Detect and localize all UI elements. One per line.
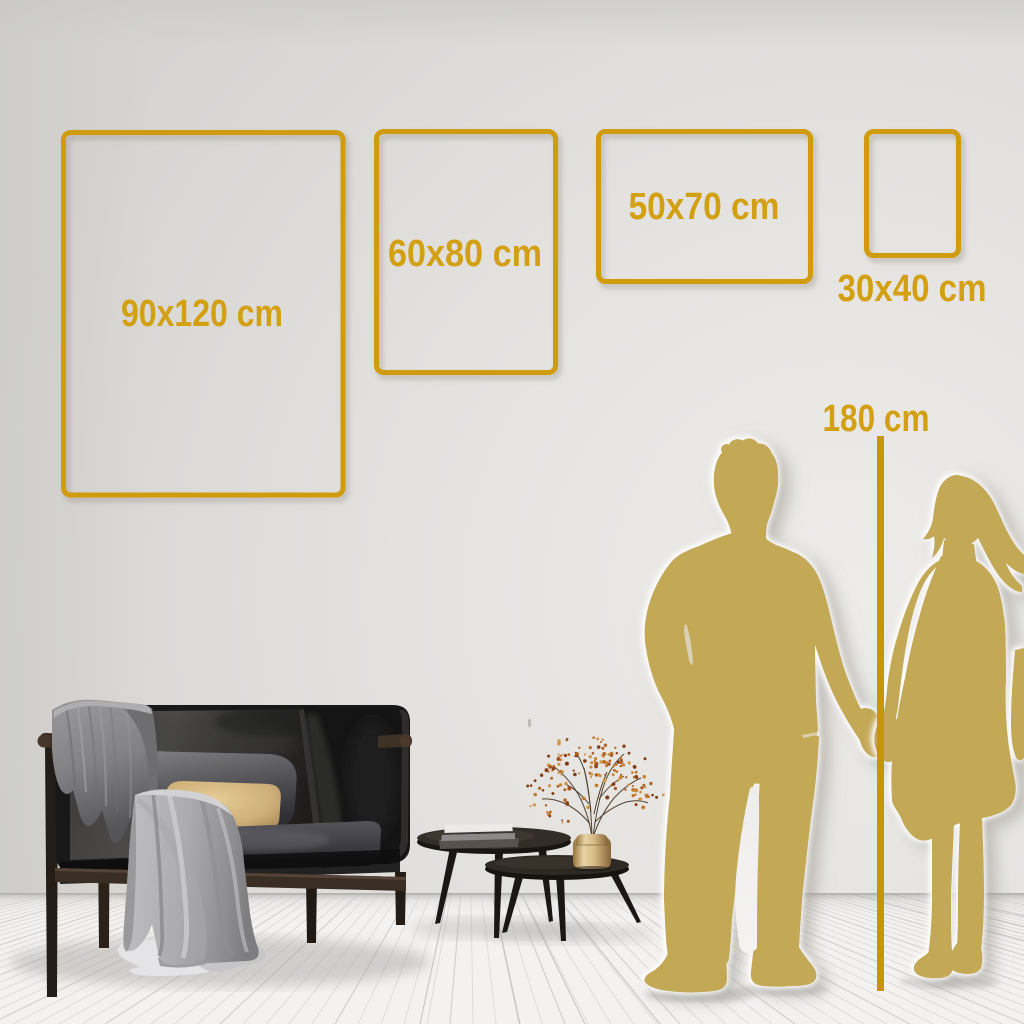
svg-text:30x40 cm: 30x40 cm: [838, 268, 987, 310]
svg-text:90x120 cm: 90x120 cm: [121, 293, 283, 335]
svg-text:50x70 cm: 50x70 cm: [629, 186, 780, 228]
svg-text:60x80 cm: 60x80 cm: [388, 233, 542, 275]
svg-text:180 cm: 180 cm: [823, 398, 930, 440]
